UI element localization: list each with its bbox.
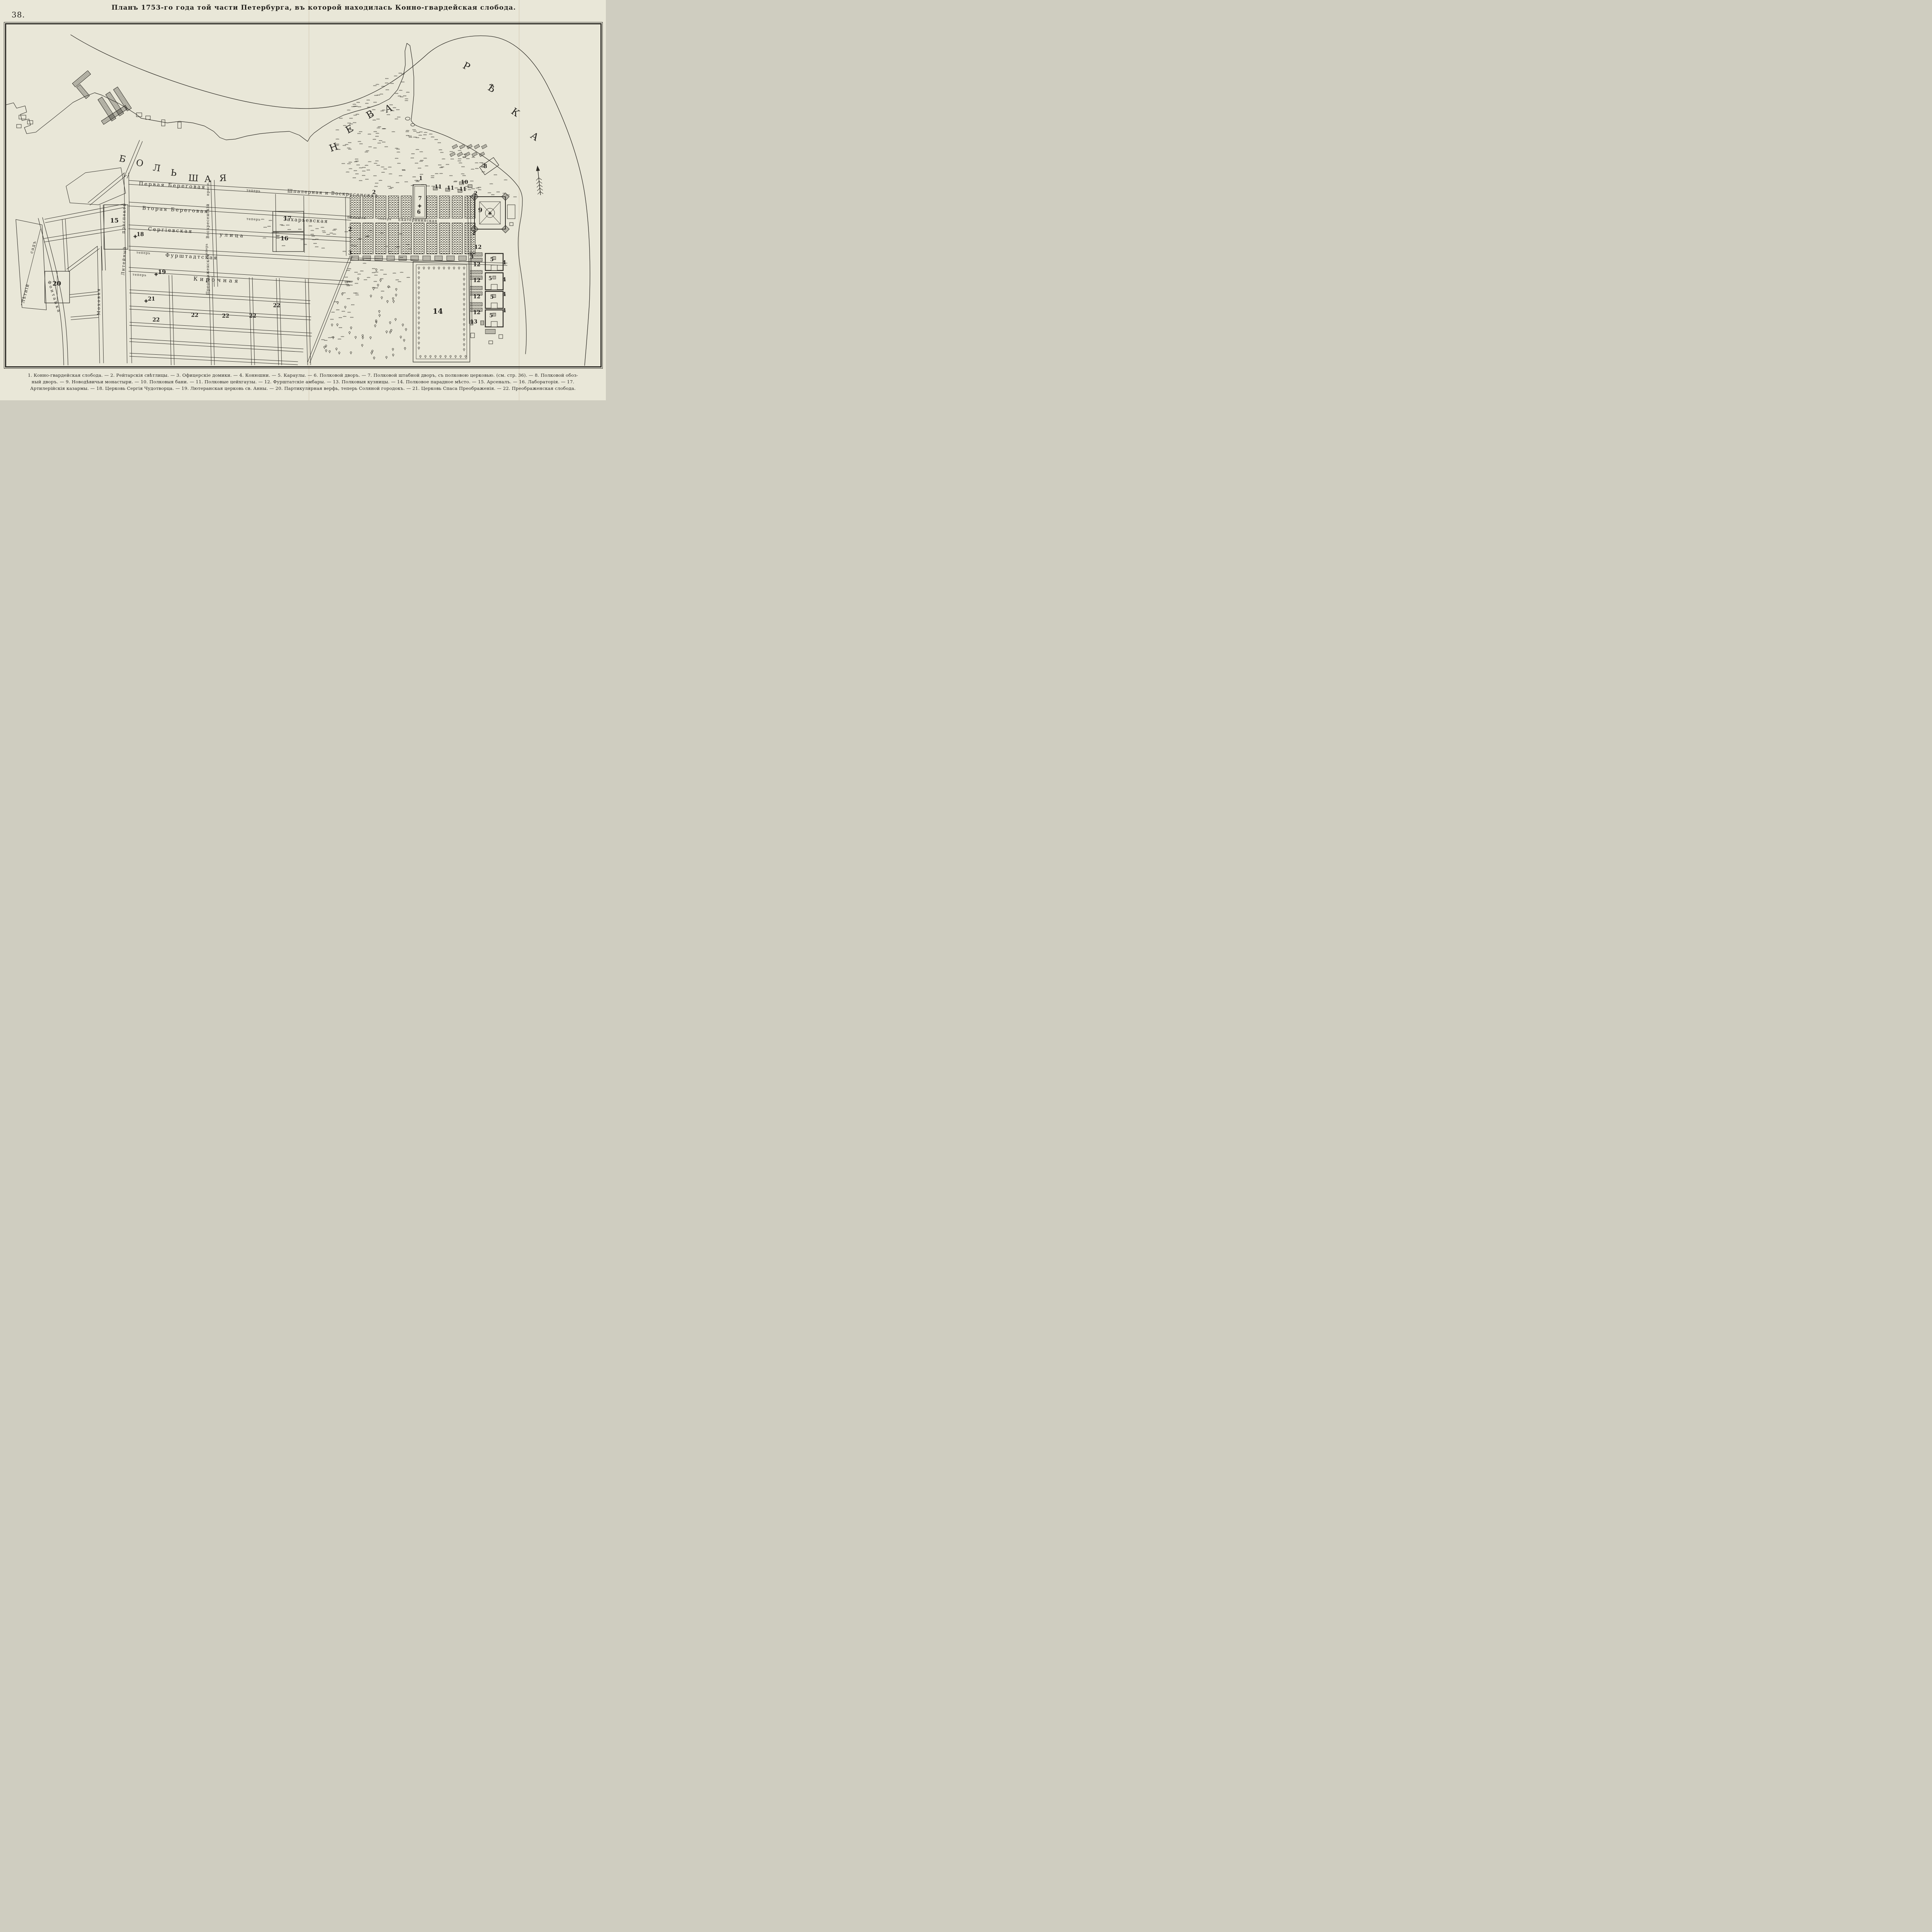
street-label: теперь	[378, 217, 392, 221]
map-number: 4	[502, 308, 506, 314]
street-label: Моховая	[96, 287, 101, 315]
map-number: 9	[478, 206, 482, 214]
street-label: Преображенская	[206, 254, 210, 294]
map-number: 4	[502, 260, 506, 266]
river-name-letter: Б	[118, 153, 127, 165]
river-name-letter: Н	[328, 141, 339, 154]
street-label: теперь	[133, 273, 147, 277]
map-number: 17	[284, 215, 292, 222]
map-number: 12	[473, 310, 481, 316]
river-name-letter: О	[135, 158, 144, 169]
map-number: 22	[249, 313, 257, 319]
map-number: 11	[435, 184, 442, 190]
street-label: улица	[219, 232, 245, 239]
map-number: 6	[417, 209, 420, 215]
street-label: Литейный	[120, 246, 127, 276]
map-number: 19	[158, 269, 166, 276]
street-label: Лѣтній	[20, 283, 31, 304]
map-number: 22	[222, 313, 230, 319]
church-cross-icon	[418, 204, 422, 208]
map-canvas: БОЛЬШАЯНЕВАРѢКАПервая БереговаятеперьШпа…	[5, 23, 602, 367]
map-number: 8	[483, 163, 487, 170]
river-name-letter: Р	[461, 60, 472, 73]
map-number: 10	[461, 179, 468, 185]
legend-line: Артилерійскія казармы. — 18. Церковь Сер…	[5, 385, 600, 392]
map-number: 2	[348, 226, 352, 233]
map-number: 3	[470, 254, 473, 260]
street-label: Екатерининская	[398, 218, 437, 223]
river-name-letter: Ш	[188, 173, 199, 184]
street-label: Сергіевская	[148, 226, 193, 235]
map-number: 20	[53, 280, 61, 287]
map-number: 18	[137, 231, 144, 238]
river-name-letter: Ѣ	[485, 82, 498, 95]
river-name-letter: Ь	[170, 168, 177, 178]
map-title: Планъ 1753-го года той части Петербурга,…	[0, 4, 606, 12]
map-number: 15	[110, 217, 119, 224]
street-label: проспектъ	[121, 203, 127, 233]
map-number: 22	[153, 317, 160, 323]
map-number: 5	[488, 276, 492, 282]
map-number: 12	[474, 244, 482, 250]
map-number: 1	[419, 175, 422, 182]
street-network	[43, 140, 507, 365]
river-name-letter: К	[509, 105, 522, 119]
map-number: 11	[447, 185, 454, 191]
river-name-letter: А	[529, 130, 541, 143]
map-number: 22	[273, 303, 281, 309]
map-number: 4	[502, 291, 506, 298]
legend-line: 1. Конно-гвардейская слобода. — 2. Рейта…	[5, 372, 600, 379]
map-number: 12	[473, 294, 481, 300]
street-label: теперь	[247, 217, 261, 222]
map-number: 5	[490, 294, 493, 300]
map-number: 13	[470, 319, 478, 325]
church-cross-icon	[488, 212, 492, 215]
map-number: 12	[473, 277, 481, 284]
street-label: Кирочная	[193, 276, 240, 284]
map-number: 7	[418, 196, 422, 202]
street-label: Воскресенскій	[206, 204, 210, 238]
legend-line: ный дворъ. — 9. Новодѣвичьи монастыри. —…	[5, 379, 600, 385]
map-number: 12	[473, 262, 481, 268]
map-number: 11	[459, 186, 467, 192]
street-label: просп.	[206, 181, 210, 196]
map-number: 2	[472, 230, 476, 236]
river-name-letter: Я	[219, 173, 227, 184]
map-number: 21	[148, 296, 155, 302]
street-label: теперь	[247, 189, 261, 193]
map-frame: БОЛЬШАЯНЕВАРѢКАПервая БереговаятеперьШпа…	[4, 22, 603, 369]
map-legend: 1. Конно-гвардейская слобода. — 2. Рейта…	[5, 372, 600, 392]
river-name-letter: Л	[152, 163, 161, 173]
map-number: 2	[372, 189, 376, 196]
church-cross-icon	[145, 299, 148, 303]
map-number: 5	[490, 257, 493, 263]
map-number: 2	[474, 190, 477, 197]
map-number: 22	[191, 312, 199, 318]
street-label: Фурштадтская	[165, 252, 218, 261]
street-label: теперь	[136, 251, 151, 255]
map-number: 4	[502, 277, 506, 283]
map-number: 3	[348, 250, 352, 256]
river-name-letter: А	[383, 102, 394, 115]
map-number: 14	[433, 307, 443, 316]
scanned-map-page: 38. Планъ 1753-го года той части Петербу…	[0, 0, 606, 400]
map-number: 16	[281, 235, 289, 242]
map-number: 5	[489, 313, 493, 319]
river-name-letter: Е	[344, 122, 355, 136]
street-label: Большая	[347, 216, 366, 220]
